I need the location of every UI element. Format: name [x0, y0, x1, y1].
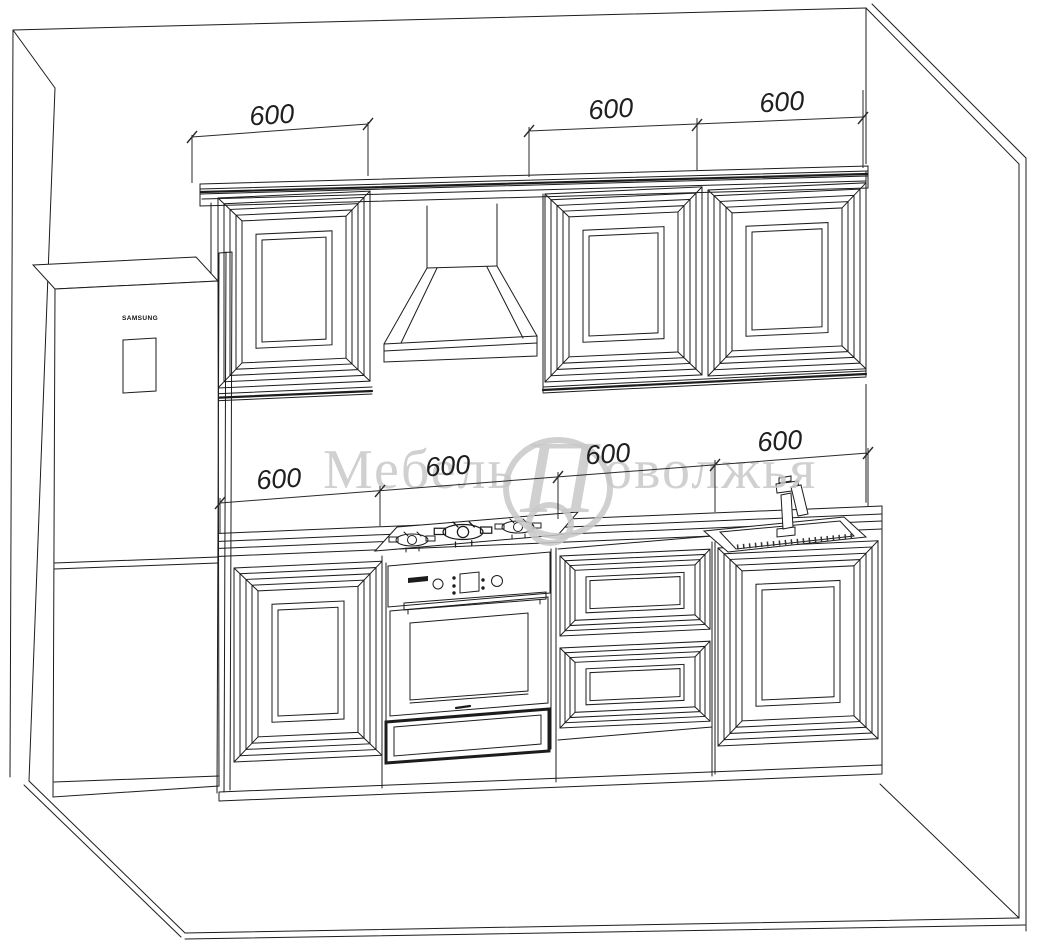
fridge: SAMSUNG	[33, 257, 219, 797]
dim-label: 600	[587, 92, 634, 125]
dimension-top-2: 600	[524, 92, 863, 177]
dim-label: 600	[255, 462, 302, 495]
floor-left-edge	[24, 781, 185, 937]
fridge-front	[53, 281, 219, 797]
upper-cabinet-run	[200, 164, 868, 408]
fridge-brand-label: SAMSUNG	[122, 315, 158, 322]
drawing-canvas: SAMSUNG Мебель П оволжья 600 600 600	[0, 0, 1048, 947]
dimension-middle-2: 600	[424, 449, 471, 482]
dim-label: 600	[756, 424, 803, 457]
right-wall-outer-edge	[1019, 158, 1026, 931]
dimension-middle-3: 600	[584, 437, 631, 470]
dimension-top-3: 600	[758, 85, 868, 168]
dim-label: 600	[584, 437, 631, 470]
floor-front-edge	[185, 918, 1025, 939]
dim-label: 600	[758, 85, 805, 118]
back-wall-top-edge	[13, 8, 866, 30]
watermark-monogram: П	[519, 420, 601, 535]
dimension-middle-4: 600	[756, 424, 803, 457]
right-wall-top-edge	[866, 4, 1026, 164]
left-wall-outer-edge	[10, 30, 13, 777]
dim-label: 600	[248, 98, 295, 131]
left-wall-corner	[29, 88, 55, 781]
dim-label: 600	[424, 449, 471, 482]
kitchen-elevation-drawing: SAMSUNG Мебель П оволжья 600 600 600	[0, 0, 1048, 947]
floor-right-edge	[880, 784, 1019, 918]
dimension-middle-1: 600	[255, 462, 302, 495]
watermark-left: Мебель	[323, 439, 515, 501]
left-wall-top-edge	[13, 30, 55, 88]
dimension-top-1: 600	[187, 98, 373, 183]
